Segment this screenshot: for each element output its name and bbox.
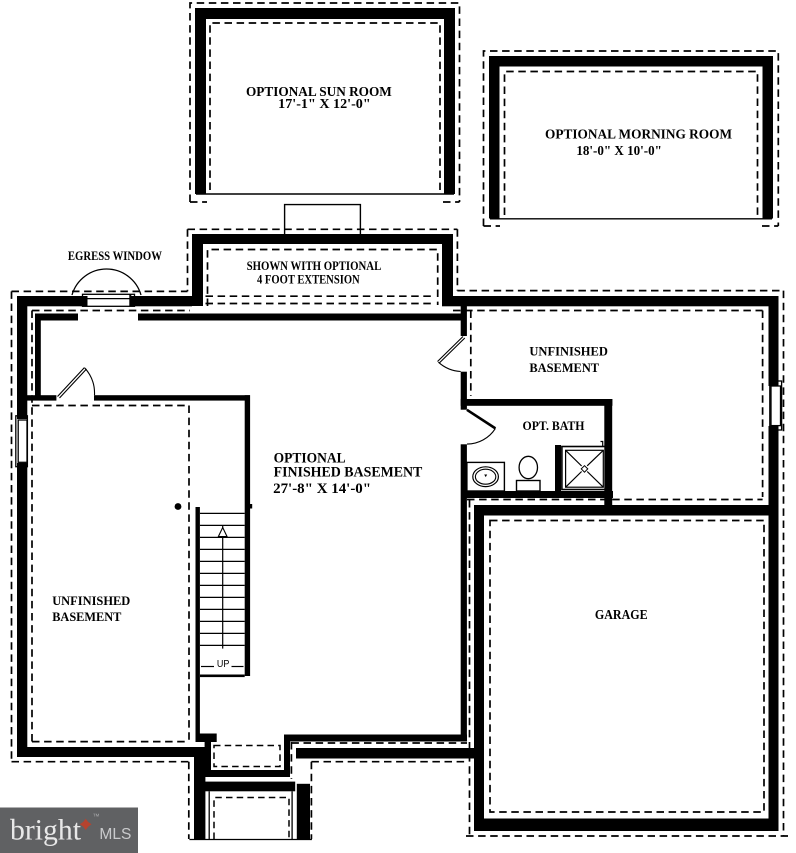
svg-text:GARAGE: GARAGE <box>595 608 648 623</box>
svg-text:FINISHED BASEMENT: FINISHED BASEMENT <box>274 465 423 481</box>
svg-text:BASEMENT: BASEMENT <box>529 360 599 375</box>
svg-text:17'-1" X 12'-0": 17'-1" X 12'-0" <box>278 96 371 111</box>
svg-text:OPT. BATH: OPT. BATH <box>523 419 585 433</box>
svg-text:™: ™ <box>93 814 100 821</box>
svg-text:bright: bright <box>10 814 82 847</box>
svg-text:OPTIONAL MORNING ROOM: OPTIONAL MORNING ROOM <box>545 128 732 143</box>
svg-text:SHOWN WITH OPTIONAL: SHOWN WITH OPTIONAL <box>247 259 382 273</box>
svg-text:4 FOOT EXTENSION: 4 FOOT EXTENSION <box>257 273 360 287</box>
svg-text:UP: UP <box>217 658 230 670</box>
svg-text:UNFINISHED: UNFINISHED <box>529 344 608 359</box>
svg-text:UNFINISHED: UNFINISHED <box>52 593 130 608</box>
svg-text:EGRESS WINDOW: EGRESS WINDOW <box>68 249 162 263</box>
svg-text:18'-0" X 10'-0": 18'-0" X 10'-0" <box>576 143 662 158</box>
svg-text:MLS: MLS <box>99 826 131 843</box>
svg-text:BASEMENT: BASEMENT <box>52 609 122 624</box>
svg-text:27'-8" X 14'-0": 27'-8" X 14'-0" <box>273 481 371 497</box>
